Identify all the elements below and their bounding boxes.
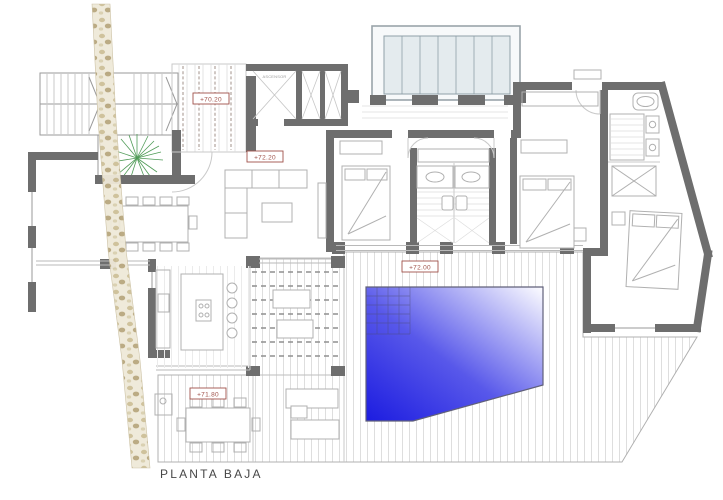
lounger bbox=[291, 420, 339, 439]
toilet bbox=[456, 196, 467, 210]
bar-stool bbox=[227, 313, 237, 323]
entry-steps bbox=[362, 106, 508, 118]
sink bbox=[646, 116, 659, 133]
bar-stool bbox=[227, 328, 237, 338]
svg-text:+72.20: +72.20 bbox=[254, 155, 276, 162]
svg-text:+71.80: +71.80 bbox=[197, 392, 219, 399]
bedside-table bbox=[574, 228, 586, 241]
sink bbox=[426, 172, 444, 182]
level-label-pool-deck: +72.00 bbox=[402, 261, 438, 272]
wing-bathroom bbox=[608, 93, 660, 196]
bedside-table bbox=[612, 212, 625, 225]
bed-bedroom-1 bbox=[342, 166, 390, 240]
floor-plan-drawing: ASCENSOR bbox=[0, 0, 723, 500]
bar-stool bbox=[227, 283, 237, 293]
tv-cabinet bbox=[318, 183, 326, 238]
svg-text:+72.00: +72.00 bbox=[409, 265, 431, 272]
toilet bbox=[442, 196, 453, 210]
bar-stool bbox=[227, 298, 237, 308]
bed-bedroom-2 bbox=[520, 176, 586, 248]
bed-wing-bedroom bbox=[626, 211, 682, 290]
plan-title: PLANTA BAJA bbox=[160, 467, 263, 481]
kitchen bbox=[156, 266, 250, 370]
sink bbox=[462, 172, 480, 182]
glass-canopy bbox=[372, 26, 520, 100]
sofa bbox=[225, 170, 307, 238]
kitchen-island bbox=[181, 274, 223, 350]
pergola-lounger bbox=[277, 320, 313, 338]
bathrooms-center bbox=[417, 163, 489, 243]
level-label-ramp: +70.20 bbox=[193, 93, 229, 104]
driveway-ramp bbox=[172, 64, 246, 152]
level-label-hall: +72.20 bbox=[247, 151, 283, 162]
lounger bbox=[286, 389, 338, 408]
svg-text:+70.20: +70.20 bbox=[200, 97, 222, 104]
coffee-table bbox=[262, 203, 292, 222]
elevator-label: ASCENSOR bbox=[262, 74, 286, 79]
pergola-lounger bbox=[273, 290, 310, 308]
pergola bbox=[250, 258, 344, 375]
sink bbox=[646, 139, 659, 156]
level-label-terrace: +71.80 bbox=[190, 388, 226, 399]
floor-plan-canvas: ASCENSOR bbox=[0, 0, 723, 500]
side-table bbox=[291, 406, 307, 418]
